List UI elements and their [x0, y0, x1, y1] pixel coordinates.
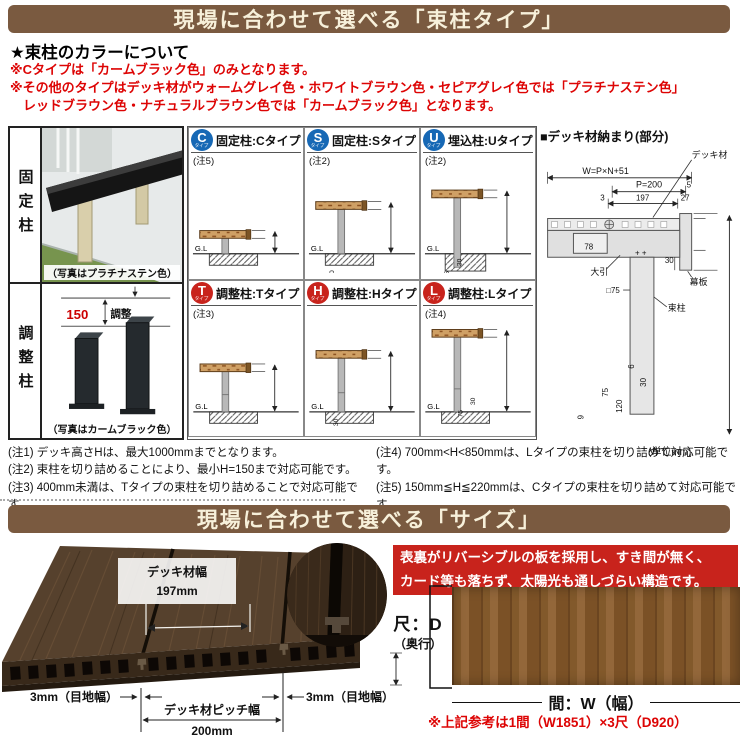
type-t-badge: Tタイプ [191, 282, 213, 304]
svg-text:75: 75 [444, 271, 451, 273]
svg-text:120: 120 [615, 399, 624, 413]
svg-text:G.L: G.L [311, 402, 323, 411]
type-l-title: 調整柱:Lタイプ [448, 285, 531, 302]
type-cell-s: Sタイプ 固定柱:Sタイプ (注2) G.L 30 75 H=550 [304, 127, 420, 280]
type-l-badge: Lタイプ [423, 282, 445, 304]
fixed-post-row: 固定柱 （写真はプラチナステン色） [10, 128, 182, 284]
type-cell-h: Hタイプ 調整柱:Hタイプ G.L 30 75 H=550~700 [304, 280, 420, 437]
svg-text:78: 78 [584, 242, 593, 251]
footnote-2: (注2) 束柱を切り詰めることにより、最小H=150まで対応可能です。 [8, 462, 376, 479]
adjust-post-row: 調整柱 150 調整 （写真はカームブラック色） [10, 284, 182, 438]
deck-detail-panel: ■デッキ材納まり(部分) デッキ材 W=P×N+51 P=200 5 3 197… [540, 126, 738, 440]
svg-text:大引: 大引 [590, 266, 608, 277]
cut-line [0, 499, 345, 501]
deck-size-panel [452, 587, 740, 685]
svg-text:幕板: 幕板 [690, 276, 708, 287]
joint-closeup-inset [287, 543, 387, 647]
type-c-title: 固定柱:Cタイプ [216, 132, 301, 149]
footnote-1: (注1) デッキ高さHは、最大1000mmまでとなります。 [8, 445, 376, 462]
svg-text:30: 30 [333, 418, 340, 426]
type-s-title: 固定柱:Sタイプ [332, 132, 416, 149]
svg-text:30: 30 [457, 258, 464, 266]
type-s-diagram: G.L 30 75 H=550 [308, 165, 416, 273]
svg-text:G.L: G.L [427, 402, 439, 411]
type-h-title: 調整柱:Hタイプ [332, 285, 417, 302]
deck-detail-title: ■デッキ材納まり(部分) [540, 126, 738, 145]
type-l-note: (注4) [423, 306, 533, 318]
svg-text:27: 27 [681, 194, 690, 203]
deck-detail-diagram: デッキ材 W=P×N+51 P=200 5 3 197 27 [540, 146, 738, 444]
svg-text:197mm: 197mm [156, 584, 197, 598]
svg-text:9: 9 [576, 414, 585, 419]
type-h-badge: Hタイプ [307, 282, 329, 304]
type-u-title: 埋込柱:Uタイプ [448, 132, 533, 149]
footnote-4: (注4) 700mm<H<850mmは、Lタイプの束柱を切り詰めて対応可能です。 [376, 445, 738, 480]
banner-size: 現場に合わせて選べる「サイズ」 [8, 505, 730, 533]
type-cell-t: Tタイプ 調整柱:Tタイプ (注3) G.L 30 75 H=400~550 [188, 280, 304, 437]
color-note-line2: ※その他のタイプはデッキ材がウォームグレイ色・ホワイトブラウン色・セピアグレイ色… [10, 79, 685, 97]
svg-text:G.L: G.L [195, 402, 207, 411]
svg-text:6: 6 [627, 364, 636, 369]
svg-text:30: 30 [639, 377, 648, 386]
color-section-heading: ★束柱のカラーについて [10, 39, 189, 63]
banner-post-type-text: 現場に合わせて選べる「束柱タイプ」 [174, 4, 565, 34]
color-section-notes: ※Cタイプは「カームブラック色」のみとなります。 ※その他のタイプはデッキ材がウ… [10, 61, 685, 116]
type-h-note [307, 306, 417, 318]
type-c-diagram: G.L 30 75 H=170 [192, 165, 300, 273]
ribbon-line1: 表裏がリバーシブルの板を採用し、すき間が無く、 [400, 546, 738, 570]
svg-text:デッキ材: デッキ材 [692, 149, 728, 160]
thickness-dimension: 30mm [378, 645, 404, 735]
type-u-note: (注2) [423, 153, 533, 165]
width-bar-left [452, 702, 542, 703]
joint-closeup-image [287, 543, 387, 647]
width-bar-right [650, 702, 740, 703]
fixed-post-photo: （写真はプラチナステン色） [42, 128, 182, 282]
fixed-post-photo-image [42, 128, 182, 282]
svg-text:デッキ材ピッチ幅: デッキ材ピッチ幅 [164, 702, 260, 717]
svg-text:デッキ材幅: デッキ材幅 [147, 564, 207, 579]
size-section: デッキ材幅 197mm 3mm（目地幅） 3mm（目地幅） デッキ材ピッチ幅 2… [0, 540, 740, 740]
svg-text:G.L: G.L [311, 244, 324, 253]
svg-text:束柱: 束柱 [668, 302, 686, 313]
adjust-post-photo: 150 調整 （写真はカームブラック色） [42, 284, 182, 438]
svg-text:3: 3 [600, 194, 605, 203]
adjust-post-illustration: 150 調整 [42, 284, 182, 416]
banner-size-text: 現場に合わせて選べる「サイズ」 [197, 504, 541, 534]
type-t-title: 調整柱:Tタイプ [216, 285, 299, 302]
svg-text:200mm: 200mm [191, 724, 232, 738]
type-c-badge: Cタイプ [191, 129, 213, 151]
color-note-line1: ※Cタイプは「カームブラック色」のみとなります。 [10, 61, 685, 79]
svg-text:75: 75 [601, 387, 610, 396]
fixed-post-label: 固定柱 [10, 128, 42, 282]
svg-text:75: 75 [458, 410, 465, 418]
svg-text:□75: □75 [606, 286, 620, 295]
type-c-note: (注5) [191, 153, 301, 165]
type-t-note: (注3) [191, 306, 301, 318]
fixed-post-caption: （写真はプラチナステン色） [44, 265, 180, 280]
svg-text:5: 5 [687, 181, 692, 190]
svg-text:調整: 調整 [110, 307, 132, 320]
type-cell-c: Cタイプ 固定柱:Cタイプ (注5) G.L 30 75 H=170 [188, 127, 304, 280]
type-h-diagram: G.L 30 75 H=550~700 [308, 318, 416, 431]
svg-text:30: 30 [329, 270, 336, 273]
adjust-post-label: 調整柱 [10, 284, 42, 438]
svg-text:197: 197 [636, 194, 650, 203]
post-type-table: 固定柱 （写真はプラチナステン色） 調整柱 [8, 126, 738, 440]
color-note-line3: レッドブラウン色・ナチュラルブラウン色では「カームブラック色」となります。 [10, 97, 685, 115]
type-t-diagram: G.L 30 75 H=400~550 [192, 318, 300, 431]
svg-text:30: 30 [470, 397, 477, 405]
type-cell-u: Uタイプ 埋込柱:Uタイプ (注2) G.L 30 75 H=700 [420, 127, 536, 280]
type-u-badge: Uタイプ [423, 129, 445, 151]
svg-text:+ +: + + [635, 248, 647, 257]
type-l-diagram: G.L 30 75 H=850~1000 [424, 318, 532, 431]
type-cell-l: Lタイプ 調整柱:Lタイプ (注4) G.L 30 75 H=850~1000 [420, 280, 536, 437]
reference-size-note: ※上記参考は1間（W1851）×3尺（D920） [428, 711, 740, 731]
svg-text:30: 30 [665, 256, 674, 265]
svg-text:P=200: P=200 [636, 180, 662, 190]
svg-text:G.L: G.L [427, 244, 440, 253]
post-type-grid: Cタイプ 固定柱:Cタイプ (注5) G.L 30 75 H=170 Sタイプ … [187, 126, 537, 440]
banner-post-type: 現場に合わせて選べる「束柱タイプ」 [8, 5, 730, 33]
svg-text:G.L: G.L [195, 244, 208, 253]
svg-text:3mm（目地幅）: 3mm（目地幅） [30, 689, 118, 704]
svg-text:W=P×N+51: W=P×N+51 [582, 166, 628, 176]
post-photo-column: 固定柱 （写真はプラチナステン色） 調整柱 [8, 126, 184, 440]
type-s-badge: Sタイプ [307, 129, 329, 151]
type-u-diagram: G.L 30 75 H=700 [424, 165, 532, 273]
type-s-note: (注2) [307, 153, 417, 165]
adjust-post-caption: （写真はカームブラック色） [44, 421, 179, 436]
svg-text:150: 150 [66, 307, 88, 322]
